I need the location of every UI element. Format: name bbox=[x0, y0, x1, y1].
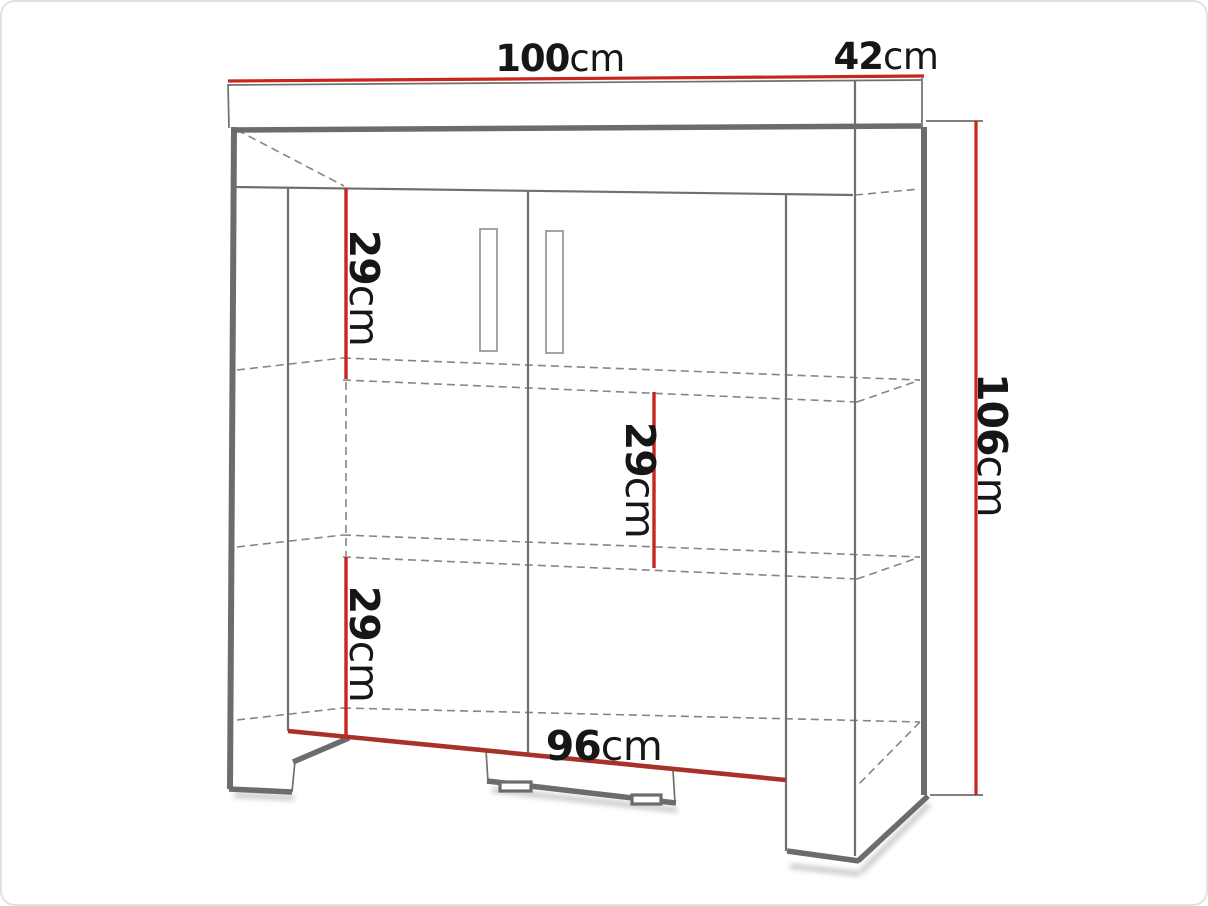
interior-top-front-edge bbox=[234, 187, 853, 195]
bottom-panel-right-edge bbox=[856, 722, 920, 787]
plinth-foot-left bbox=[500, 782, 531, 791]
left-door-handle bbox=[480, 229, 497, 351]
cabinet-dimension-diagram: 100cm 42cm 96cm 29cm 29cm 29cm 106cm bbox=[0, 0, 1208, 906]
plinth-foot-right bbox=[632, 795, 661, 804]
left-foot-bottom bbox=[229, 789, 292, 792]
plinth-left-edge bbox=[486, 750, 488, 782]
label-shelf-top: 29cm bbox=[340, 230, 388, 347]
right-foot-bottom bbox=[787, 851, 859, 861]
top-panel-left-edge bbox=[228, 84, 229, 128]
shelf2-front-edge bbox=[343, 557, 857, 579]
left-side-edge bbox=[230, 127, 234, 789]
diagram-svg: 100cm 42cm 96cm 29cm 29cm 29cm 106cm bbox=[0, 0, 1208, 906]
bottom-panel-back-edge bbox=[343, 708, 920, 722]
label-shelf-middle: 29cm bbox=[616, 422, 664, 539]
shelf2-left-edge bbox=[237, 535, 343, 547]
right-foot-side-shadow bbox=[861, 804, 929, 872]
right-door-handle bbox=[546, 231, 563, 353]
door-handles bbox=[480, 229, 563, 353]
label-height: 106cm bbox=[968, 373, 1016, 517]
shelf2-back-edge bbox=[343, 535, 920, 557]
dimension-labels: 100cm 42cm 96cm 29cm 29cm 29cm 106cm bbox=[340, 35, 1016, 770]
shelf1-front-edge bbox=[343, 380, 857, 402]
shelf1-left-edge bbox=[237, 358, 343, 370]
shelf1-right-edge bbox=[857, 380, 920, 402]
bottom-notch-diagonal bbox=[293, 738, 349, 762]
right-foot-shadow bbox=[790, 866, 860, 874]
bottom-width-dimension-line bbox=[288, 731, 786, 780]
left-foot-inner-edge bbox=[292, 761, 295, 792]
left-foot-shadow bbox=[234, 795, 294, 798]
shelf2-right-edge bbox=[857, 557, 920, 579]
label-top-depth: 42cm bbox=[834, 35, 939, 78]
bottom-panel-left-edge bbox=[237, 708, 343, 720]
plinth-right-edge bbox=[673, 770, 675, 803]
hidden-edges bbox=[237, 130, 920, 787]
label-bottom-width: 96cm bbox=[546, 722, 663, 770]
foot-shadows bbox=[234, 790, 929, 874]
shelf1-back-edge bbox=[343, 358, 920, 380]
label-shelf-bottom: 29cm bbox=[340, 586, 388, 703]
interior-top-right-dashed bbox=[855, 189, 919, 195]
right-foot-side-diagonal bbox=[858, 796, 928, 861]
label-top-width: 100cm bbox=[495, 37, 625, 80]
top-panel-bottom-edge bbox=[231, 126, 921, 130]
interior-top-left-diagonal bbox=[237, 130, 344, 186]
